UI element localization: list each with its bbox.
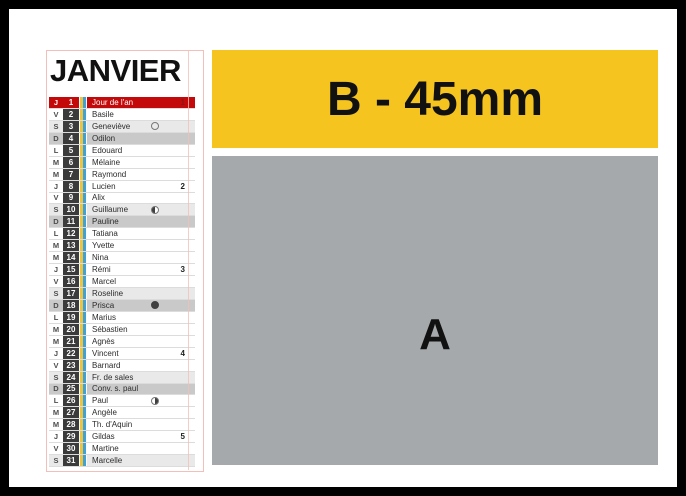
day-letter: J: [49, 264, 63, 275]
day-letter: S: [49, 455, 63, 466]
day-number: 21: [63, 336, 79, 347]
calendar-day-row: J8Lucien2: [49, 181, 195, 193]
zone-a-block[interactable]: A: [212, 156, 658, 465]
day-number: 17: [63, 288, 79, 299]
day-letter: J: [49, 348, 63, 359]
day-letter: L: [49, 228, 63, 239]
saint-name-cell: Raymond: [87, 169, 195, 180]
stripe-decoration: [79, 300, 87, 311]
day-number: 26: [63, 395, 79, 406]
saint-name: Basile: [92, 110, 114, 119]
day-number: 22: [63, 348, 79, 359]
calendar-day-row: D18Prisca: [49, 300, 195, 312]
saint-name: Prisca: [92, 301, 114, 310]
stripe-decoration: [79, 348, 87, 359]
stripe-decoration: [79, 455, 87, 466]
week-number: 5: [181, 432, 185, 441]
stripe-decoration: [79, 312, 87, 323]
zone-a-label: A: [419, 310, 451, 360]
calendar-day-row: V30Martine: [49, 443, 195, 455]
calendar-day-row: V16Marcel: [49, 276, 195, 288]
stripe-decoration: [79, 133, 87, 144]
stripe-decoration: [79, 252, 87, 263]
day-number: 3: [63, 121, 79, 132]
day-letter: V: [49, 276, 63, 287]
moon-phase-icon: [151, 206, 159, 214]
saint-name: Geneviève: [92, 122, 130, 131]
day-number: 30: [63, 443, 79, 454]
saint-name: Marcel: [92, 277, 116, 286]
day-number: 23: [63, 360, 79, 371]
calendar-day-row: D11Pauline: [49, 216, 195, 228]
zone-b-block[interactable]: B - 45mm: [212, 50, 658, 148]
saint-name: Edouard: [92, 146, 122, 155]
day-letter: S: [49, 372, 63, 383]
calendar-day-row: D4Odilon: [49, 133, 195, 145]
day-number: 7: [63, 169, 79, 180]
stripe-decoration: [79, 97, 87, 108]
saint-name: Odilon: [92, 134, 115, 143]
stripe-decoration: [79, 264, 87, 275]
day-letter: D: [49, 133, 63, 144]
day-letter: L: [49, 395, 63, 406]
saint-name: Vincent: [92, 349, 119, 358]
saint-name-cell: Pauline: [87, 216, 195, 227]
calendar-day-row: J1Jour de l'an1: [49, 97, 195, 109]
day-letter: M: [49, 169, 63, 180]
saint-name-cell: Nina: [87, 252, 195, 263]
day-number: 16: [63, 276, 79, 287]
calendar-day-row: D25Conv. s. paul: [49, 384, 195, 396]
stripe-decoration: [79, 372, 87, 383]
stripe-decoration: [79, 181, 87, 192]
stripe-decoration: [79, 157, 87, 168]
saint-name-cell: Paul: [87, 395, 195, 406]
day-letter: S: [49, 288, 63, 299]
saint-name-cell: Barnard: [87, 360, 195, 371]
day-number: 5: [63, 145, 79, 156]
saint-name-cell: Geneviève: [87, 121, 195, 132]
week-number: 3: [181, 265, 185, 274]
day-letter: M: [49, 324, 63, 335]
saint-name-cell: Angèle: [87, 407, 195, 418]
calendar-day-row: S17Roseline: [49, 288, 195, 300]
stripe-decoration: [79, 336, 87, 347]
stripe-decoration: [79, 109, 87, 120]
day-letter: L: [49, 312, 63, 323]
calendar-day-row: V9Alix: [49, 193, 195, 205]
day-letter: J: [49, 97, 63, 108]
day-number: 11: [63, 216, 79, 227]
saint-name-cell: Yvette: [87, 240, 195, 251]
saint-name: Guillaume: [92, 205, 128, 214]
calendar-day-row: M21Agnès: [49, 336, 195, 348]
stripe-decoration: [79, 121, 87, 132]
day-letter: M: [49, 240, 63, 251]
saint-name-cell: Conv. s. paul: [87, 384, 195, 395]
day-letter: J: [49, 431, 63, 442]
calendar-day-row: S24Fr. de sales: [49, 372, 195, 384]
day-number: 4: [63, 133, 79, 144]
day-letter: S: [49, 121, 63, 132]
stripe-decoration: [79, 216, 87, 227]
calendar-day-row: M14Nina: [49, 252, 195, 264]
calendar-day-row: L26Paul: [49, 395, 195, 407]
day-number: 15: [63, 264, 79, 275]
saint-name: Barnard: [92, 361, 120, 370]
saint-name: Rémi: [92, 265, 111, 274]
saint-name-cell: Guillaume: [87, 204, 195, 215]
day-letter: D: [49, 300, 63, 311]
saint-name: Conv. s. paul: [92, 384, 138, 393]
day-number: 10: [63, 204, 79, 215]
saint-name-cell: Jour de l'an1: [87, 97, 195, 108]
day-number: 29: [63, 431, 79, 442]
day-letter: M: [49, 419, 63, 430]
stripe-decoration: [79, 145, 87, 156]
stripe-decoration: [79, 288, 87, 299]
calendar-day-row: J22Vincent4: [49, 348, 195, 360]
saint-name-cell: Vincent4: [87, 348, 195, 359]
day-number: 2: [63, 109, 79, 120]
day-number: 27: [63, 407, 79, 418]
moon-phase-icon: [151, 122, 159, 130]
calendar-table: J1Jour de l'an1V2BasileS3GenevièveD4Odil…: [49, 97, 195, 467]
calendar-day-row: S31Marcelle: [49, 455, 195, 467]
saint-name: Tatiana: [92, 229, 118, 238]
day-letter: V: [49, 360, 63, 371]
moon-phase-icon: [151, 397, 159, 405]
saint-name-cell: Odilon: [87, 133, 195, 144]
saint-name: Marcelle: [92, 456, 122, 465]
saint-name: Th. d'Aquin: [92, 420, 132, 429]
calendar-day-row: J15Rémi3: [49, 264, 195, 276]
calendar-day-row: M13Yvette: [49, 240, 195, 252]
day-letter: L: [49, 145, 63, 156]
calendar-day-row: L12Tatiana: [49, 228, 195, 240]
month-title: JANVIER: [50, 53, 181, 89]
calendar-day-row: M20Sébastien: [49, 324, 195, 336]
stripe-decoration: [79, 240, 87, 251]
saint-name-cell: Marius: [87, 312, 195, 323]
calendar-day-row: J29Gildas5: [49, 431, 195, 443]
day-letter: M: [49, 407, 63, 418]
saint-name-cell: Sébastien: [87, 324, 195, 335]
saint-name: Sébastien: [92, 325, 128, 334]
design-proof-canvas: JANVIER J1Jour de l'an1V2BasileS3Geneviè…: [0, 0, 686, 496]
saint-name-cell: Basile: [87, 109, 195, 120]
day-number: 6: [63, 157, 79, 168]
day-number: 8: [63, 181, 79, 192]
saint-name-cell: Edouard: [87, 145, 195, 156]
day-letter: V: [49, 109, 63, 120]
day-letter: M: [49, 252, 63, 263]
stripe-decoration: [79, 395, 87, 406]
week-number: 2: [181, 182, 185, 191]
day-letter: V: [49, 443, 63, 454]
day-number: 9: [63, 193, 79, 204]
stripe-decoration: [79, 204, 87, 215]
saint-name-cell: Gildas5: [87, 431, 195, 442]
saint-name-cell: Marcel: [87, 276, 195, 287]
calendar-day-row: S10Guillaume: [49, 204, 195, 216]
saint-name: Nina: [92, 253, 108, 262]
saint-name: Raymond: [92, 170, 126, 179]
saint-name: Lucien: [92, 182, 116, 191]
saint-name: Fr. de sales: [92, 373, 133, 382]
saint-name-cell: Tatiana: [87, 228, 195, 239]
stripe-decoration: [79, 228, 87, 239]
stripe-decoration: [79, 443, 87, 454]
saint-name-cell: Marcelle: [87, 455, 195, 466]
day-number: 24: [63, 372, 79, 383]
saint-name-cell: Mélaine: [87, 157, 195, 168]
calendar-day-row: L19Marius: [49, 312, 195, 324]
saint-name: Mélaine: [92, 158, 120, 167]
saint-name: Paul: [92, 396, 108, 405]
day-letter: V: [49, 193, 63, 204]
saint-name: Yvette: [92, 241, 114, 250]
calendar-day-row: V2Basile: [49, 109, 195, 121]
zone-b-label: B - 45mm: [327, 72, 543, 127]
saint-name: Pauline: [92, 217, 119, 226]
day-number: 14: [63, 252, 79, 263]
saint-name: Gildas: [92, 432, 115, 441]
saint-name: Martine: [92, 444, 119, 453]
stripe-decoration: [79, 360, 87, 371]
saint-name-cell: Roseline: [87, 288, 195, 299]
saint-name-cell: Martine: [87, 443, 195, 454]
saint-name: Alix: [92, 193, 105, 202]
stripe-decoration: [79, 384, 87, 395]
calendar-day-row: M6Mélaine: [49, 157, 195, 169]
stripe-decoration: [79, 324, 87, 335]
moon-phase-icon: [151, 301, 159, 309]
day-number: 13: [63, 240, 79, 251]
calendar-day-row: V23Barnard: [49, 360, 195, 372]
stripe-decoration: [79, 431, 87, 442]
stripe-decoration: [79, 193, 87, 204]
saint-name-cell: Agnès: [87, 336, 195, 347]
saint-name: Roseline: [92, 289, 123, 298]
day-letter: M: [49, 157, 63, 168]
day-number: 28: [63, 419, 79, 430]
saint-name: Jour de l'an: [92, 98, 133, 107]
day-letter: M: [49, 336, 63, 347]
week-number: 1: [181, 98, 185, 107]
stripe-decoration: [79, 419, 87, 430]
day-number: 18: [63, 300, 79, 311]
saint-name: Agnès: [92, 337, 115, 346]
week-number: 4: [181, 349, 185, 358]
saint-name-cell: Alix: [87, 193, 195, 204]
stripe-decoration: [79, 169, 87, 180]
calendar-day-row: M7Raymond: [49, 169, 195, 181]
saint-name-cell: Prisca: [87, 300, 195, 311]
day-number: 12: [63, 228, 79, 239]
day-number: 19: [63, 312, 79, 323]
day-number: 20: [63, 324, 79, 335]
day-letter: D: [49, 384, 63, 395]
calendar-day-row: M27Angèle: [49, 407, 195, 419]
stripe-decoration: [79, 276, 87, 287]
calendar-day-row: S3Geneviève: [49, 121, 195, 133]
day-letter: D: [49, 216, 63, 227]
day-number: 1: [63, 97, 79, 108]
saint-name-cell: Lucien2: [87, 181, 195, 192]
stripe-decoration: [79, 407, 87, 418]
day-letter: S: [49, 204, 63, 215]
saint-name-cell: Fr. de sales: [87, 372, 195, 383]
day-number: 31: [63, 455, 79, 466]
day-number: 25: [63, 384, 79, 395]
saint-name: Marius: [92, 313, 116, 322]
saint-name: Angèle: [92, 408, 117, 417]
day-letter: J: [49, 181, 63, 192]
saint-name-cell: Th. d'Aquin: [87, 419, 195, 430]
calendar-day-row: L5Edouard: [49, 145, 195, 157]
calendar-day-row: M28Th. d'Aquin: [49, 419, 195, 431]
saint-name-cell: Rémi3: [87, 264, 195, 275]
